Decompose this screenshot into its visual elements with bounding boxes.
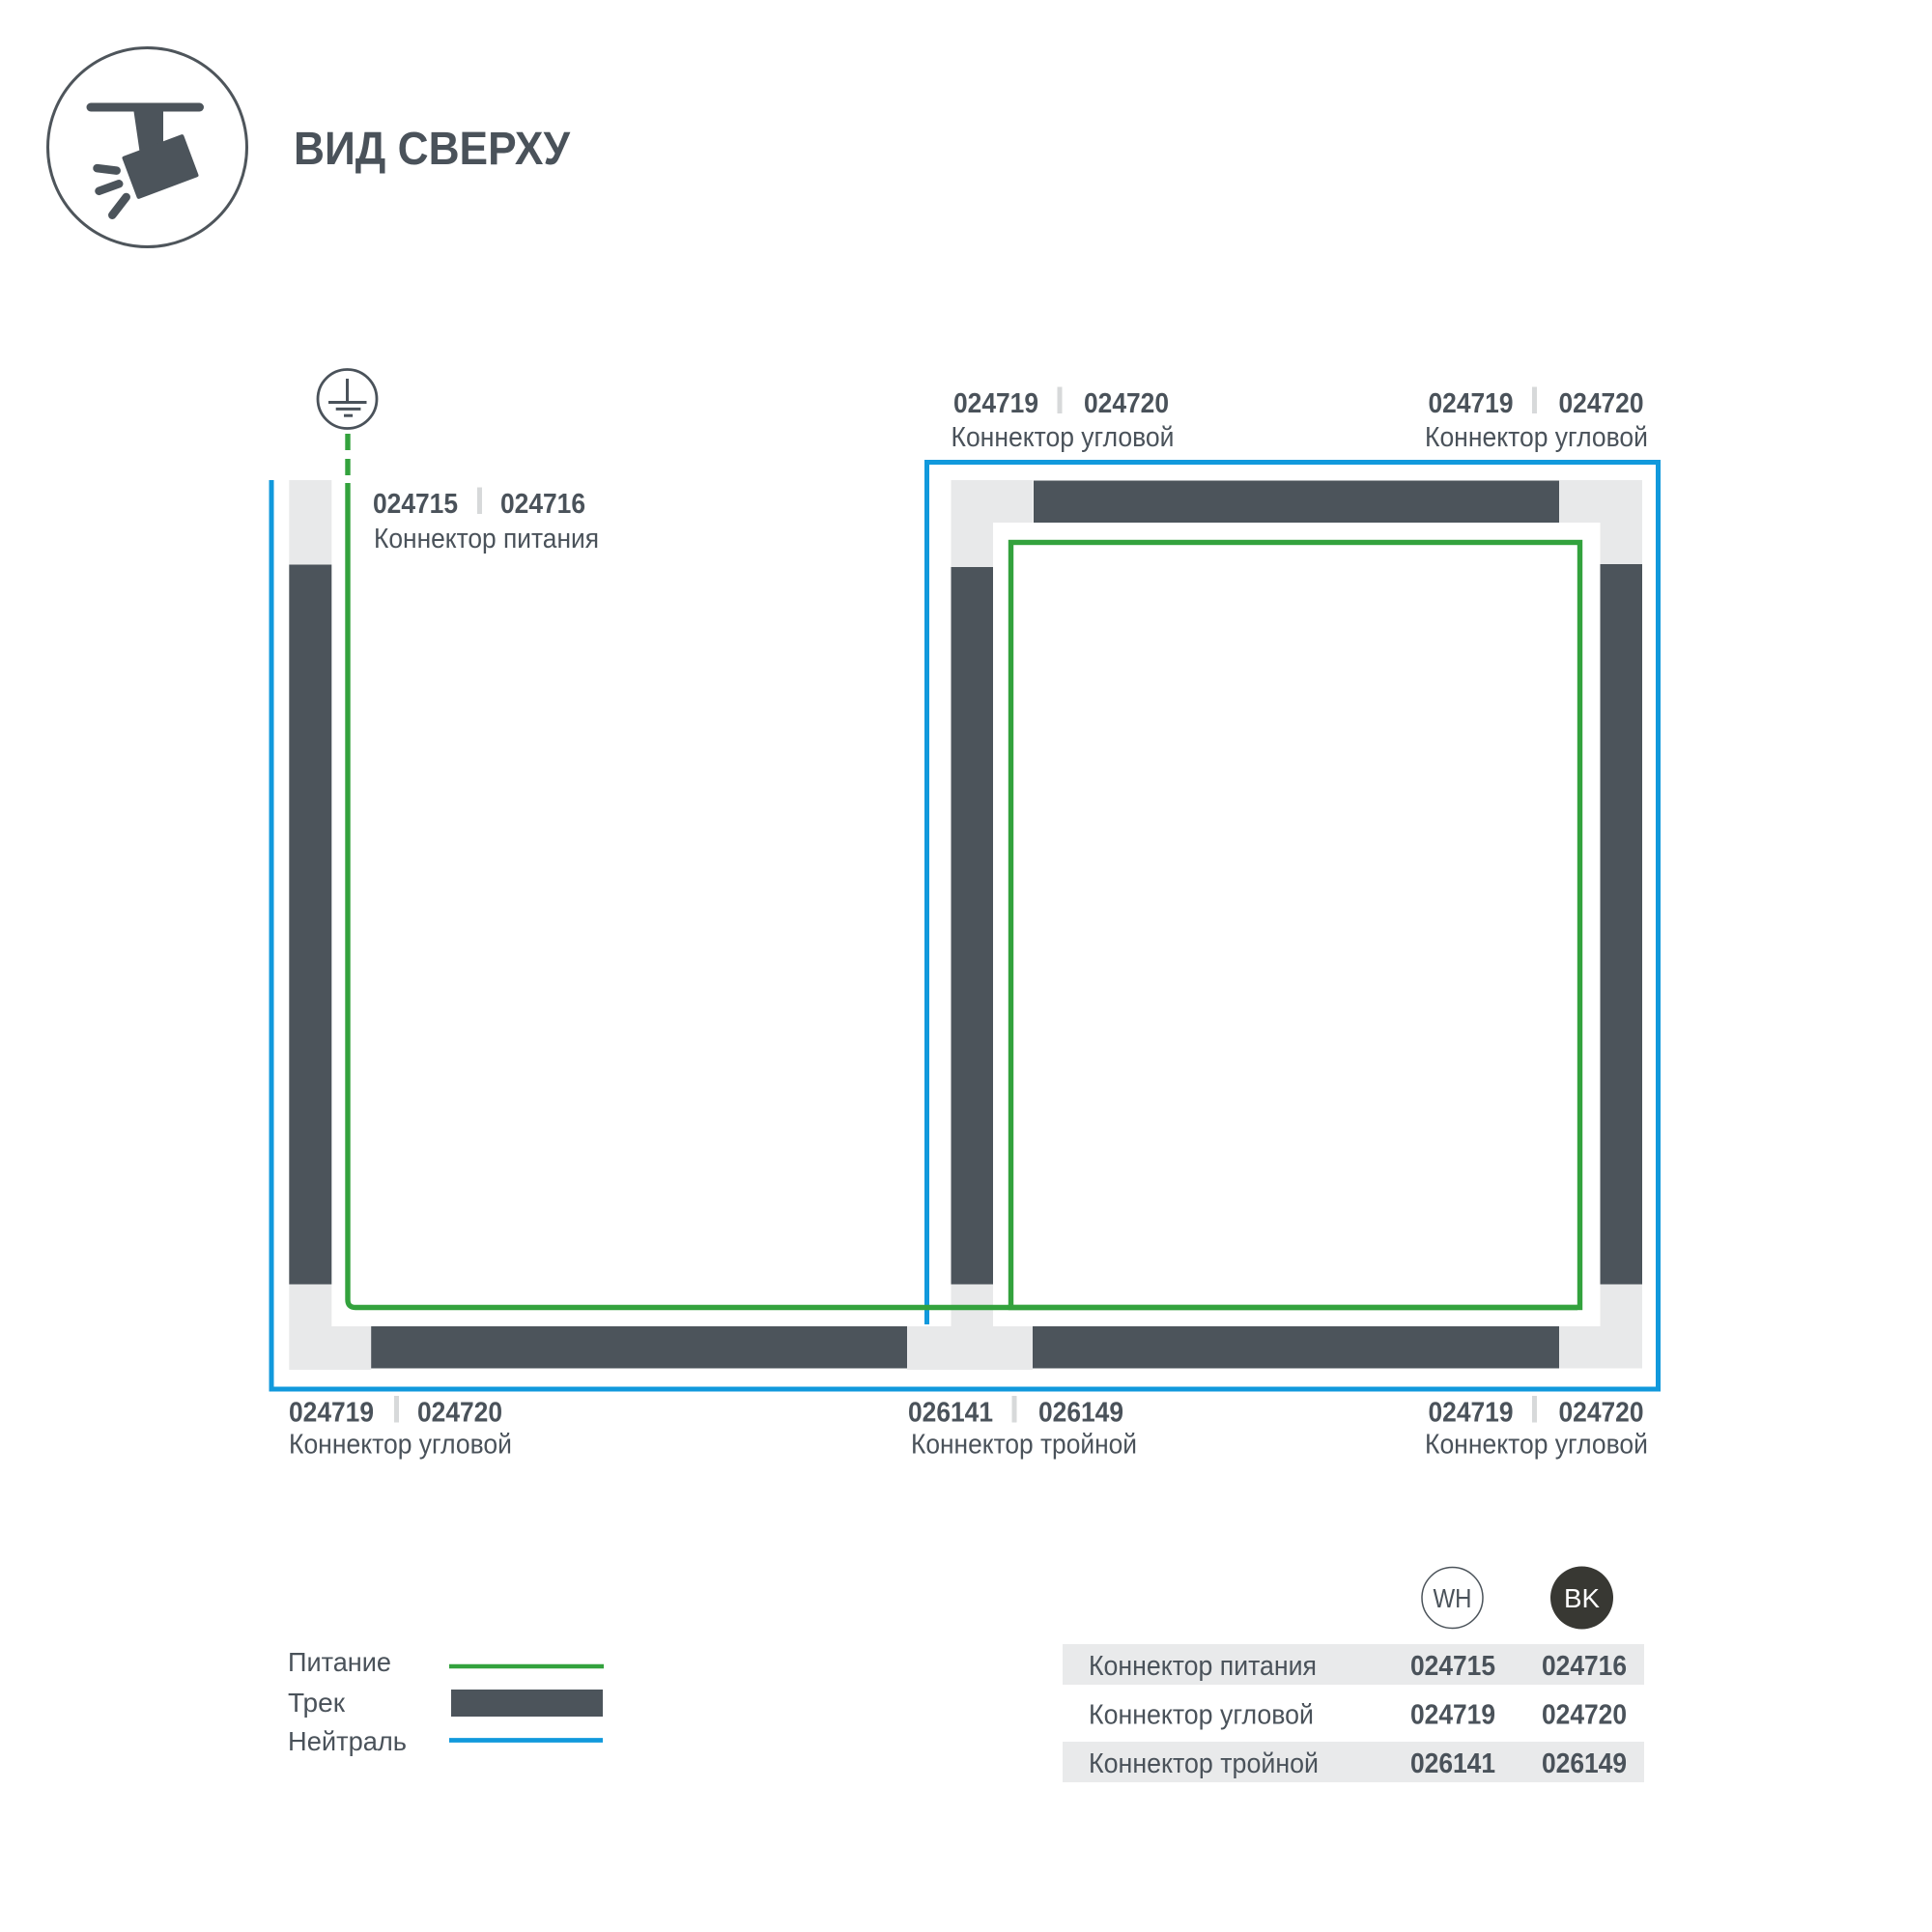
svg-text:Коннектор угловой: Коннектор угловой [289,1430,512,1461]
svg-text:024720: 024720 [417,1398,502,1429]
svg-text:024720: 024720 [1084,388,1169,419]
svg-text:026141: 026141 [1410,1748,1495,1779]
svg-text:024719: 024719 [1429,1398,1514,1429]
svg-text:WH: WH [1434,1583,1472,1613]
svg-text:ВИД СВЕРХУ: ВИД СВЕРХУ [294,124,571,175]
svg-text:Коннектор питания: Коннектор питания [1089,1651,1317,1682]
svg-text:024720: 024720 [1559,388,1644,419]
svg-text:Коннектор угловой: Коннектор угловой [1089,1700,1314,1731]
svg-text:Коннектор угловой: Коннектор угловой [1425,422,1648,453]
svg-text:024719: 024719 [1410,1700,1495,1731]
svg-text:024715: 024715 [1410,1651,1495,1682]
svg-text:024716: 024716 [500,489,585,520]
svg-text:BK: BK [1564,1583,1600,1613]
svg-text:024715: 024715 [373,489,458,520]
svg-text:024720: 024720 [1559,1398,1644,1429]
svg-text:024720: 024720 [1542,1700,1627,1731]
svg-text:Нейтраль: Нейтраль [288,1726,407,1756]
svg-text:026149: 026149 [1038,1398,1123,1429]
svg-text:024719: 024719 [953,388,1038,419]
svg-text:Трек: Трек [288,1688,346,1718]
svg-text:Коннектор угловой: Коннектор угловой [952,422,1175,453]
svg-text:Коннектор угловой: Коннектор угловой [1425,1430,1648,1461]
svg-text:024719: 024719 [1429,388,1514,419]
svg-text:024716: 024716 [1542,1651,1627,1682]
svg-text:Коннектор питания: Коннектор питания [374,524,599,554]
svg-text:Питание: Питание [288,1647,391,1677]
svg-text:026141: 026141 [908,1398,993,1429]
svg-text:Коннектор тройной: Коннектор тройной [1089,1748,1319,1779]
svg-text:024719: 024719 [289,1398,374,1429]
svg-text:026149: 026149 [1542,1748,1627,1779]
svg-text:Коннектор тройной: Коннектор тройной [911,1430,1137,1461]
